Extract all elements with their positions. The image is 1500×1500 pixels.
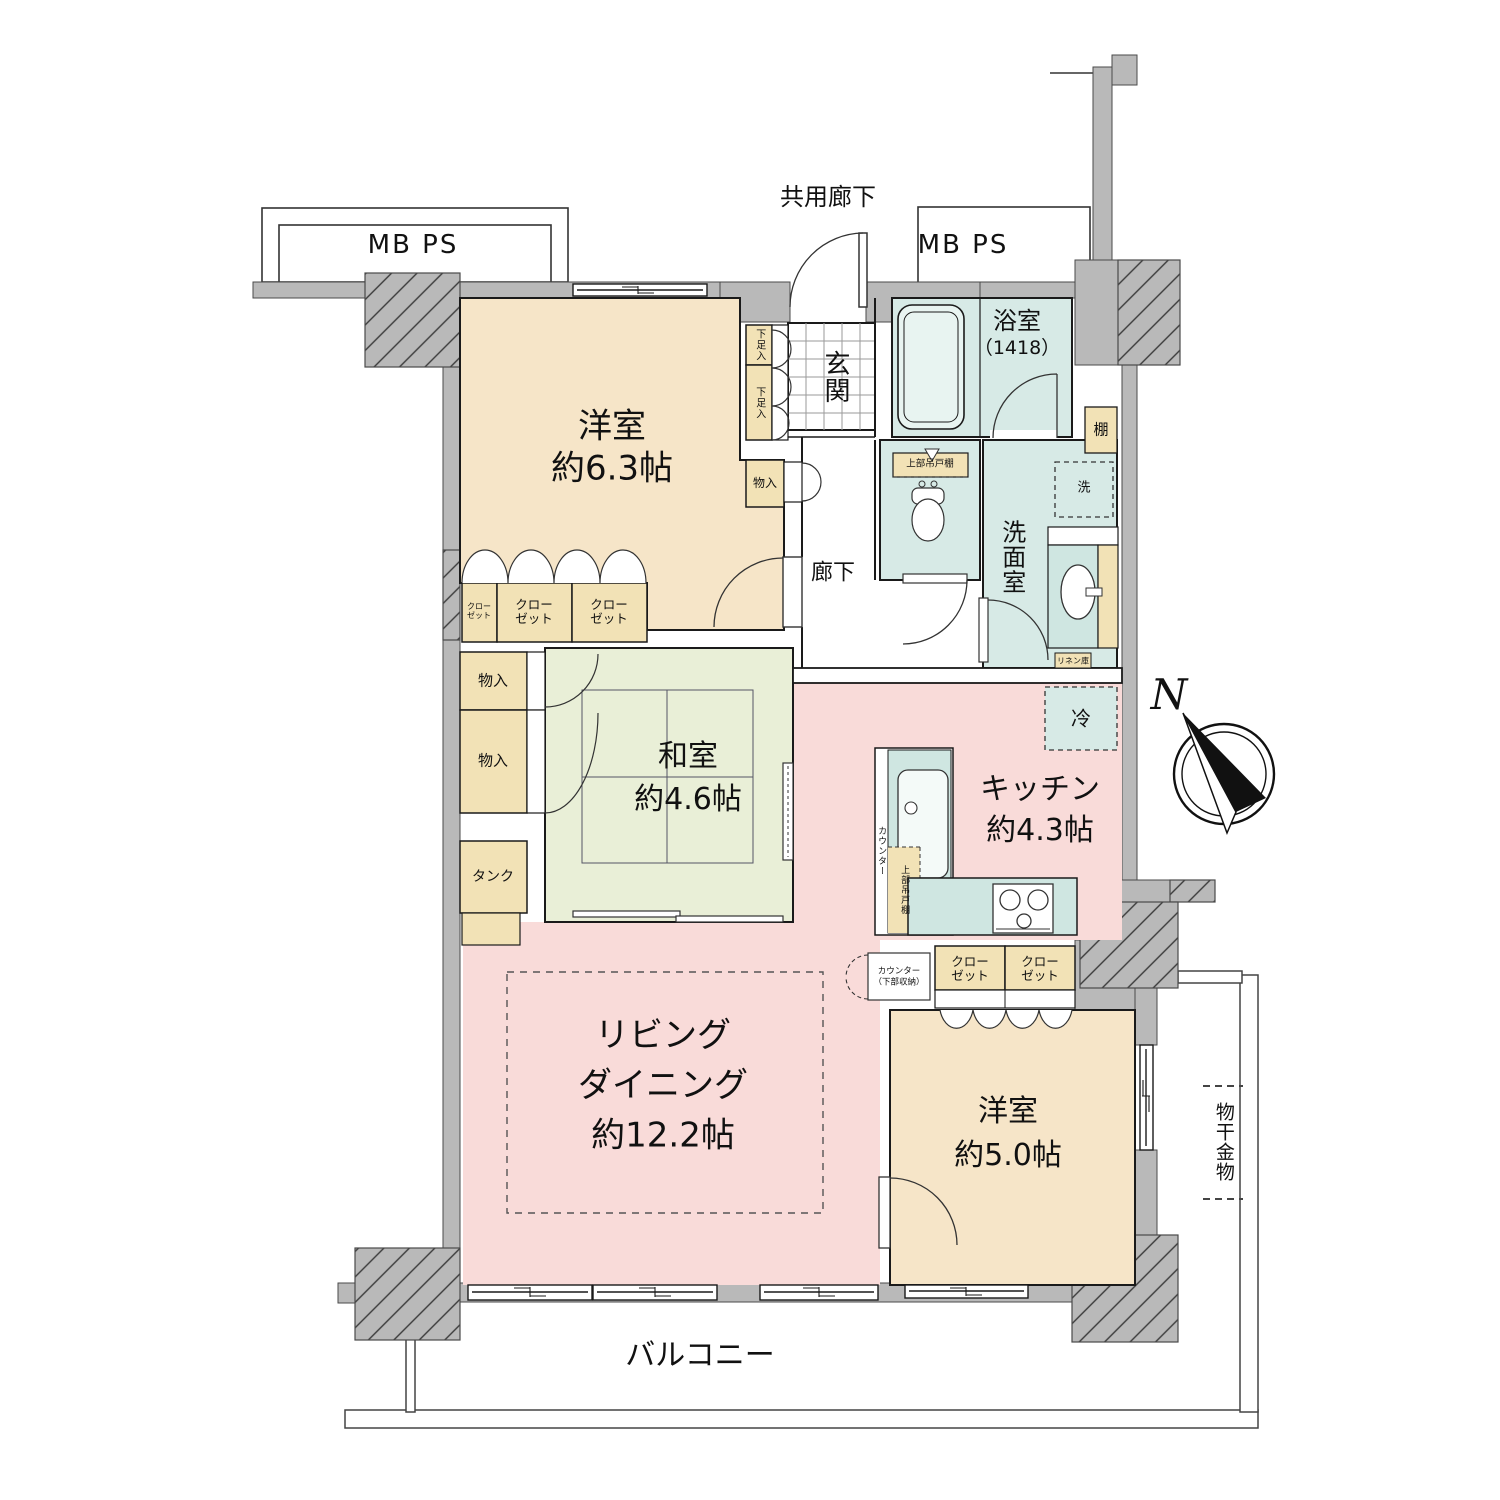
closet-right-label: クローゼット: [588, 598, 630, 626]
counter-label: カウンター: [876, 826, 886, 876]
toilet-icon: [912, 488, 944, 541]
hall-storage-label: 物入: [753, 477, 777, 491]
counter-lower-storage-line1: カウンター: [878, 966, 921, 977]
meter-box-left-label: MB PS: [368, 231, 459, 261]
counter-lower-storage-label: カウンター （下部収納）: [873, 966, 924, 987]
closet-small-label: クローゼット: [465, 603, 493, 621]
storage-upper-label: 物入: [478, 672, 508, 689]
hallway-label: 廊下: [811, 560, 855, 585]
window-top-western63: [573, 284, 707, 296]
japanese-room-size: 約4.6帖: [634, 783, 742, 818]
hallway-bottom-wall: [793, 668, 1122, 683]
kitchen-upper-cabinet-label: 上部吊戸棚: [899, 865, 909, 915]
floor-plan: 共用廊下 MB PS MB PS 洋室 約6.3帖 玄関 下足入 下足入 物入 …: [0, 0, 1500, 1500]
entrance-area: [746, 233, 875, 440]
compass-north-label: N: [1151, 671, 1188, 719]
japanese-room-name: 和室: [658, 740, 718, 775]
shelf-label: 棚: [1093, 421, 1108, 438]
toilet-door: [903, 574, 967, 644]
storage-lower-label: 物入: [478, 752, 508, 769]
shoe-cabinet-lower-label: 下足入: [753, 387, 765, 420]
tank-label: タンク: [472, 869, 514, 885]
toilet-upper-cabinet-label: 上部吊戸棚: [906, 460, 954, 471]
window-ld-right: [760, 1285, 878, 1300]
living-dining-line2: ダイニング: [578, 1066, 748, 1105]
entrance-door: [790, 233, 867, 307]
common-corridor-label: 共用廊下: [780, 184, 876, 212]
ld-kitchen-strip-floor: [793, 683, 880, 927]
washroom-label: 洗面室: [997, 520, 1025, 595]
western63-size: 約6.3帖: [551, 449, 673, 488]
bath-name: 浴室: [993, 308, 1041, 336]
entrance-label: 玄関: [819, 350, 849, 404]
closet-kitchen-right-label: クローゼット: [1019, 955, 1061, 983]
floor-plan-drawing: [0, 0, 1500, 1500]
counter-lower-storage-line2: （下部収納）: [873, 977, 924, 988]
fridge-label: 冷: [1071, 708, 1091, 731]
balcony-label: バルコニー: [625, 1339, 774, 1374]
closet-kitchen-left-label: クローゼット: [949, 955, 991, 983]
drying-hardware-label: 物干金物: [1212, 1102, 1234, 1182]
meter-box-right-label: MB PS: [918, 231, 1009, 261]
window-western50-bottom: [905, 1285, 1028, 1298]
western50-name: 洋室: [978, 1095, 1038, 1130]
linen-cabinet-label: リネン庫: [1057, 656, 1089, 665]
bath-size: （1418）: [974, 338, 1060, 360]
window-western50-side: [1140, 1045, 1153, 1150]
window-ld-left: [468, 1285, 592, 1300]
kitchen-size: 約4.3帖: [986, 814, 1094, 849]
closet-mid-label: クローゼット: [513, 598, 555, 626]
living-dining-line1: リビング: [595, 1016, 731, 1055]
window-ld-mid: [593, 1285, 717, 1300]
washer-label: 洗: [1077, 482, 1090, 497]
western63-name: 洋室: [578, 407, 646, 446]
kitchen-name: キッチン: [980, 773, 1100, 808]
compass-icon: [1174, 713, 1274, 833]
living-dining-size: 約12.2帖: [591, 1116, 735, 1155]
shoe-cabinet-upper-label: 下足入: [753, 329, 765, 362]
kitchen-stove: [908, 878, 1077, 935]
western50-size: 約5.0帖: [954, 1139, 1062, 1174]
vanity-sink: [1048, 527, 1118, 648]
